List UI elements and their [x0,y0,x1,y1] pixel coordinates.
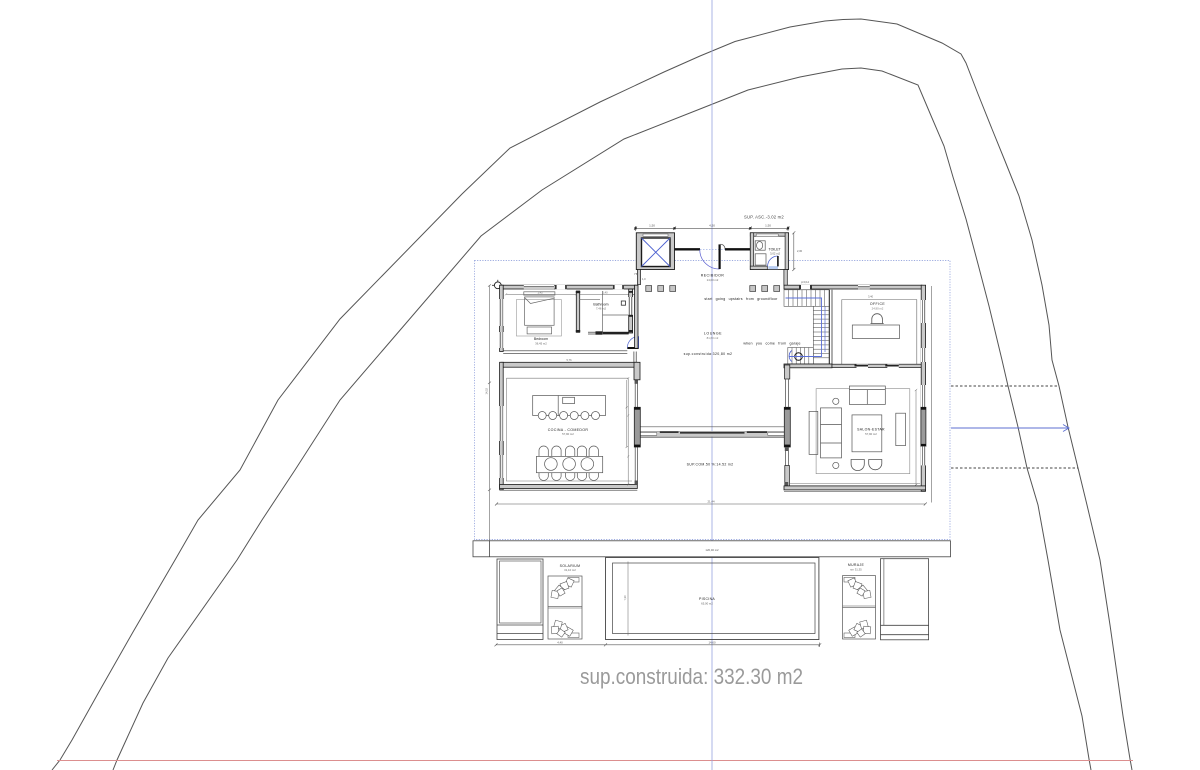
svg-text:SUP.COM.50 %:14.52 m2: SUP.COM.50 %:14.52 m2 [687,463,734,467]
svg-text:21,44: 21,44 [708,500,715,504]
svg-text:3,40: 3,40 [868,295,874,299]
svg-text:81,60 m2: 81,60 m2 [707,336,719,340]
svg-text:PISCINA: PISCINA [699,597,715,601]
svg-text:1,40: 1,40 [602,290,608,294]
svg-text:1,50: 1,50 [649,224,655,228]
svg-text:36,45 m2: 36,45 m2 [535,342,547,346]
svg-text:1,0: 1,0 [642,277,646,281]
svg-text:7,46 m2: 7,46 m2 [596,307,607,311]
svg-text:4,50: 4,50 [709,224,715,228]
svg-text:sm 31,35: sm 31,35 [850,568,862,572]
svg-text:sup.construida: 332.30 m2: sup.construida: 332.30 m2 [580,664,803,689]
svg-text:31,10 m2: 31,10 m2 [564,568,576,572]
svg-text:57,90 m2: 57,90 m2 [562,432,574,436]
svg-text:OFFICE: OFFICE [870,302,885,306]
svg-text:4,40: 4,40 [557,641,563,645]
svg-text:57,90 m2: 57,90 m2 [865,432,877,436]
svg-text:sup.construida:320,80 m2: sup.construida:320,80 m2 [684,352,733,356]
svg-text:Y5: Y5 [634,272,638,276]
svg-text:1,50: 1,50 [765,224,771,228]
svg-text:65,00 m2: 65,00 m2 [701,602,713,606]
svg-text:SALON-ESTAR: SALON-ESTAR [857,428,885,432]
svg-text:14,60: 14,60 [709,641,716,645]
svg-text:120,46 m2: 120,46 m2 [705,548,719,552]
svg-text:start going upstairs from grou: start going upstairs from groundfloor [704,297,778,301]
svg-text:7,30: 7,30 [623,595,627,601]
svg-text:SUP. ASC.-3.02 m2: SUP. ASC.-3.02 m2 [744,214,784,219]
svg-text:p=0,14: p=0,14 [801,280,810,284]
svg-text:1,45: 1,45 [537,290,543,294]
svg-text:5,76: 5,76 [566,358,572,362]
svg-text:14,52: 14,52 [485,387,489,394]
svg-text:24,90 m2: 24,90 m2 [872,306,884,310]
svg-text:3,02 m2: 3,02 m2 [770,251,781,255]
svg-text:when you come from garaje: when you come from garaje [743,342,800,346]
svg-text:2,30: 2,30 [797,249,803,253]
svg-text:Bedroom: Bedroom [534,337,548,341]
svg-text:14,00 m2: 14,00 m2 [707,278,719,282]
svg-text:LOUNGE: LOUNGE [704,331,722,335]
